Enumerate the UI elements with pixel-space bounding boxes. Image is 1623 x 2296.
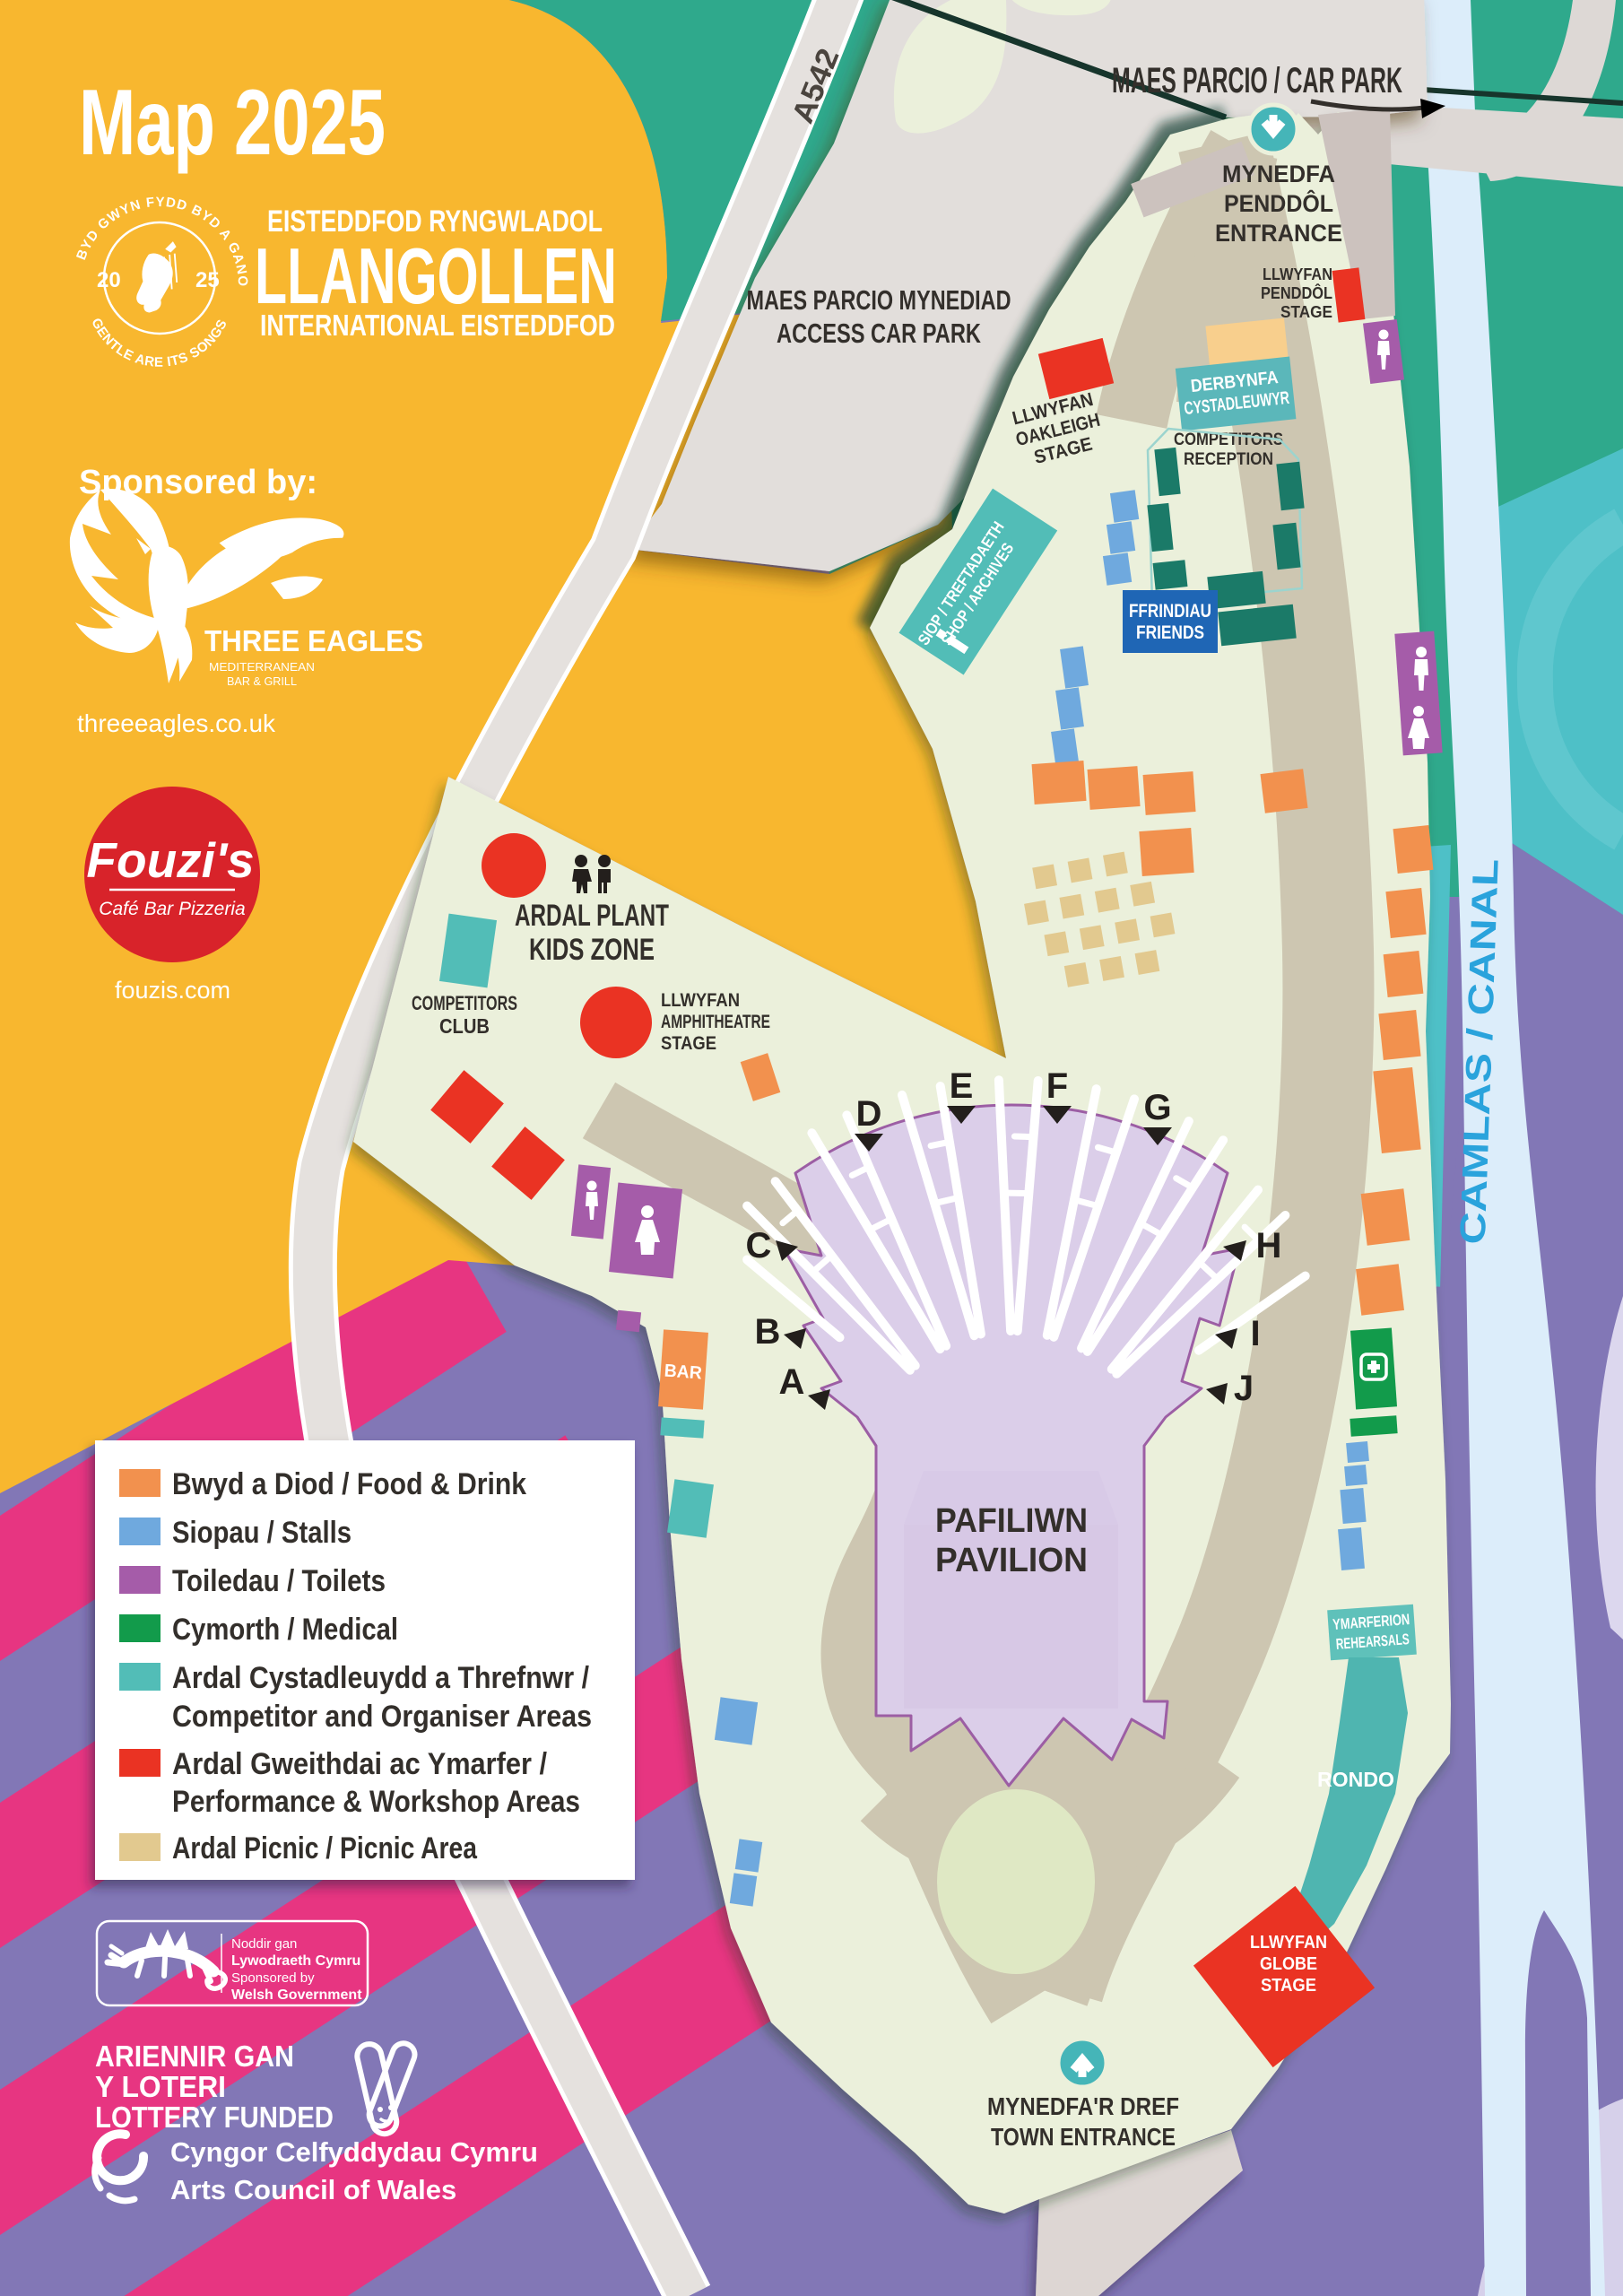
svg-text:KIDS ZONE: KIDS ZONE [529,933,655,967]
svg-text:STAGE: STAGE [1261,1976,1316,1996]
svg-text:ARIENNIR GAN: ARIENNIR GAN [95,2039,294,2073]
svg-text:TOWN ENTRANCE: TOWN ENTRANCE [991,2123,1176,2151]
svg-text:fouzis.com: fouzis.com [115,977,230,1004]
svg-text:J: J [1234,1369,1254,1408]
svg-text:Toiledau / Toilets: Toiledau / Toilets [172,1564,386,1598]
svg-text:Bwyd a Diod / Food & Drink: Bwyd a Diod / Food & Drink [172,1467,526,1501]
svg-text:D: D [856,1094,882,1134]
svg-text:INTERNATIONAL EISTEDDFOD: INTERNATIONAL EISTEDDFOD [260,309,615,342]
svg-text:Ardal Picnic / Picnic Area: Ardal Picnic / Picnic Area [172,1831,478,1865]
svg-text:GLOBE: GLOBE [1260,1954,1317,1974]
svg-text:Siopau / Stalls: Siopau / Stalls [172,1516,352,1550]
svg-text:PENDDÔL: PENDDÔL [1261,283,1332,302]
svg-text:THREE EAGLES: THREE EAGLES [204,624,423,657]
svg-text:MAES PARCIO MYNEDIAD: MAES PARCIO MYNEDIAD [747,284,1011,316]
svg-text:BAR & GRILL: BAR & GRILL [227,674,297,688]
svg-text:Arts Council of Wales: Arts Council of Wales [170,2174,456,2205]
svg-text:I: I [1250,1314,1260,1353]
svg-text:COMPETITORS: COMPETITORS [1174,430,1283,449]
svg-text:FRIENDS: FRIENDS [1136,622,1204,643]
svg-text:B: B [755,1312,781,1352]
svg-text:Sponsored by: Sponsored by [231,1970,315,1986]
svg-text:Cyngor Celfyddydau Cymru: Cyngor Celfyddydau Cymru [170,2136,538,2168]
svg-text:C: C [746,1226,772,1265]
svg-text:G: G [1143,1088,1171,1127]
svg-text:LLANGOLLEN: LLANGOLLEN [255,231,617,320]
svg-text:RECEPTION: RECEPTION [1184,450,1273,469]
svg-text:25: 25 [195,268,220,292]
svg-text:PAVILION: PAVILION [935,1542,1088,1579]
svg-text:Performance & Workshop Areas: Performance & Workshop Areas [172,1785,580,1819]
svg-text:MYNEDFA'R DREF: MYNEDFA'R DREF [987,2092,1179,2120]
svg-text:E: E [950,1066,974,1106]
svg-text:LOTTERY FUNDED: LOTTERY FUNDED [95,2100,334,2134]
svg-text:LLWYFAN: LLWYFAN [1250,1933,1327,1952]
svg-text:PENDDÔL: PENDDÔL [1224,189,1333,217]
svg-text:Lywodraeth Cymru: Lywodraeth Cymru [231,1953,360,1969]
svg-text:Fouzi's: Fouzi's [86,832,254,888]
svg-text:Ardal Gweithdai ac Ymarfer /: Ardal Gweithdai ac Ymarfer / [172,1747,547,1781]
svg-text:ENTRANCE: ENTRANCE [1215,220,1342,247]
svg-text:MYNEDFA: MYNEDFA [1222,161,1335,187]
svg-text:A: A [779,1362,805,1402]
svg-text:Y LOTERI: Y LOTERI [95,2070,226,2103]
svg-text:20: 20 [97,268,121,292]
svg-text:LLWYFAN: LLWYFAN [1263,265,1332,283]
svg-text:Café Bar Pizzeria: Café Bar Pizzeria [99,899,245,919]
svg-text:Ardal Cystadleuydd a Threfnwr: Ardal Cystadleuydd a Threfnwr / [172,1661,589,1695]
svg-text:CLUB: CLUB [439,1014,490,1038]
svg-text:Welsh Government: Welsh Government [231,1987,362,2003]
svg-text:COMPETITORS: COMPETITORS [412,992,517,1014]
svg-text:AMPHITHEATRE: AMPHITHEATRE [661,1012,770,1032]
svg-text:RONDO: RONDO [1317,1768,1394,1791]
svg-text:MEDITERRANEAN: MEDITERRANEAN [209,660,315,674]
svg-text:LLWYFAN: LLWYFAN [661,990,740,1011]
svg-text:Noddir gan: Noddir gan [231,1936,297,1952]
svg-text:H: H [1256,1226,1282,1265]
svg-text:PAFILIWN: PAFILIWN [935,1502,1088,1540]
svg-text:ACCESS CAR PARK: ACCESS CAR PARK [777,317,981,349]
svg-text:ARDAL PLANT: ARDAL PLANT [515,899,669,933]
svg-text:threeeagles.co.uk: threeeagles.co.uk [77,709,276,737]
svg-text:Competitor and Organiser Areas: Competitor and Organiser Areas [172,1700,592,1734]
svg-text:BAR: BAR [664,1361,703,1384]
svg-text:MAES PARCIO / CAR PARK: MAES PARCIO / CAR PARK [1112,61,1402,100]
svg-text:STAGE: STAGE [1280,303,1332,321]
svg-text:STAGE: STAGE [661,1033,716,1054]
svg-text:F: F [1046,1066,1068,1106]
svg-text:Map 2025: Map 2025 [79,71,386,175]
svg-text:Cymorth / Medical: Cymorth / Medical [172,1613,398,1647]
svg-text:FFRINDIAU: FFRINDIAU [1129,601,1211,622]
